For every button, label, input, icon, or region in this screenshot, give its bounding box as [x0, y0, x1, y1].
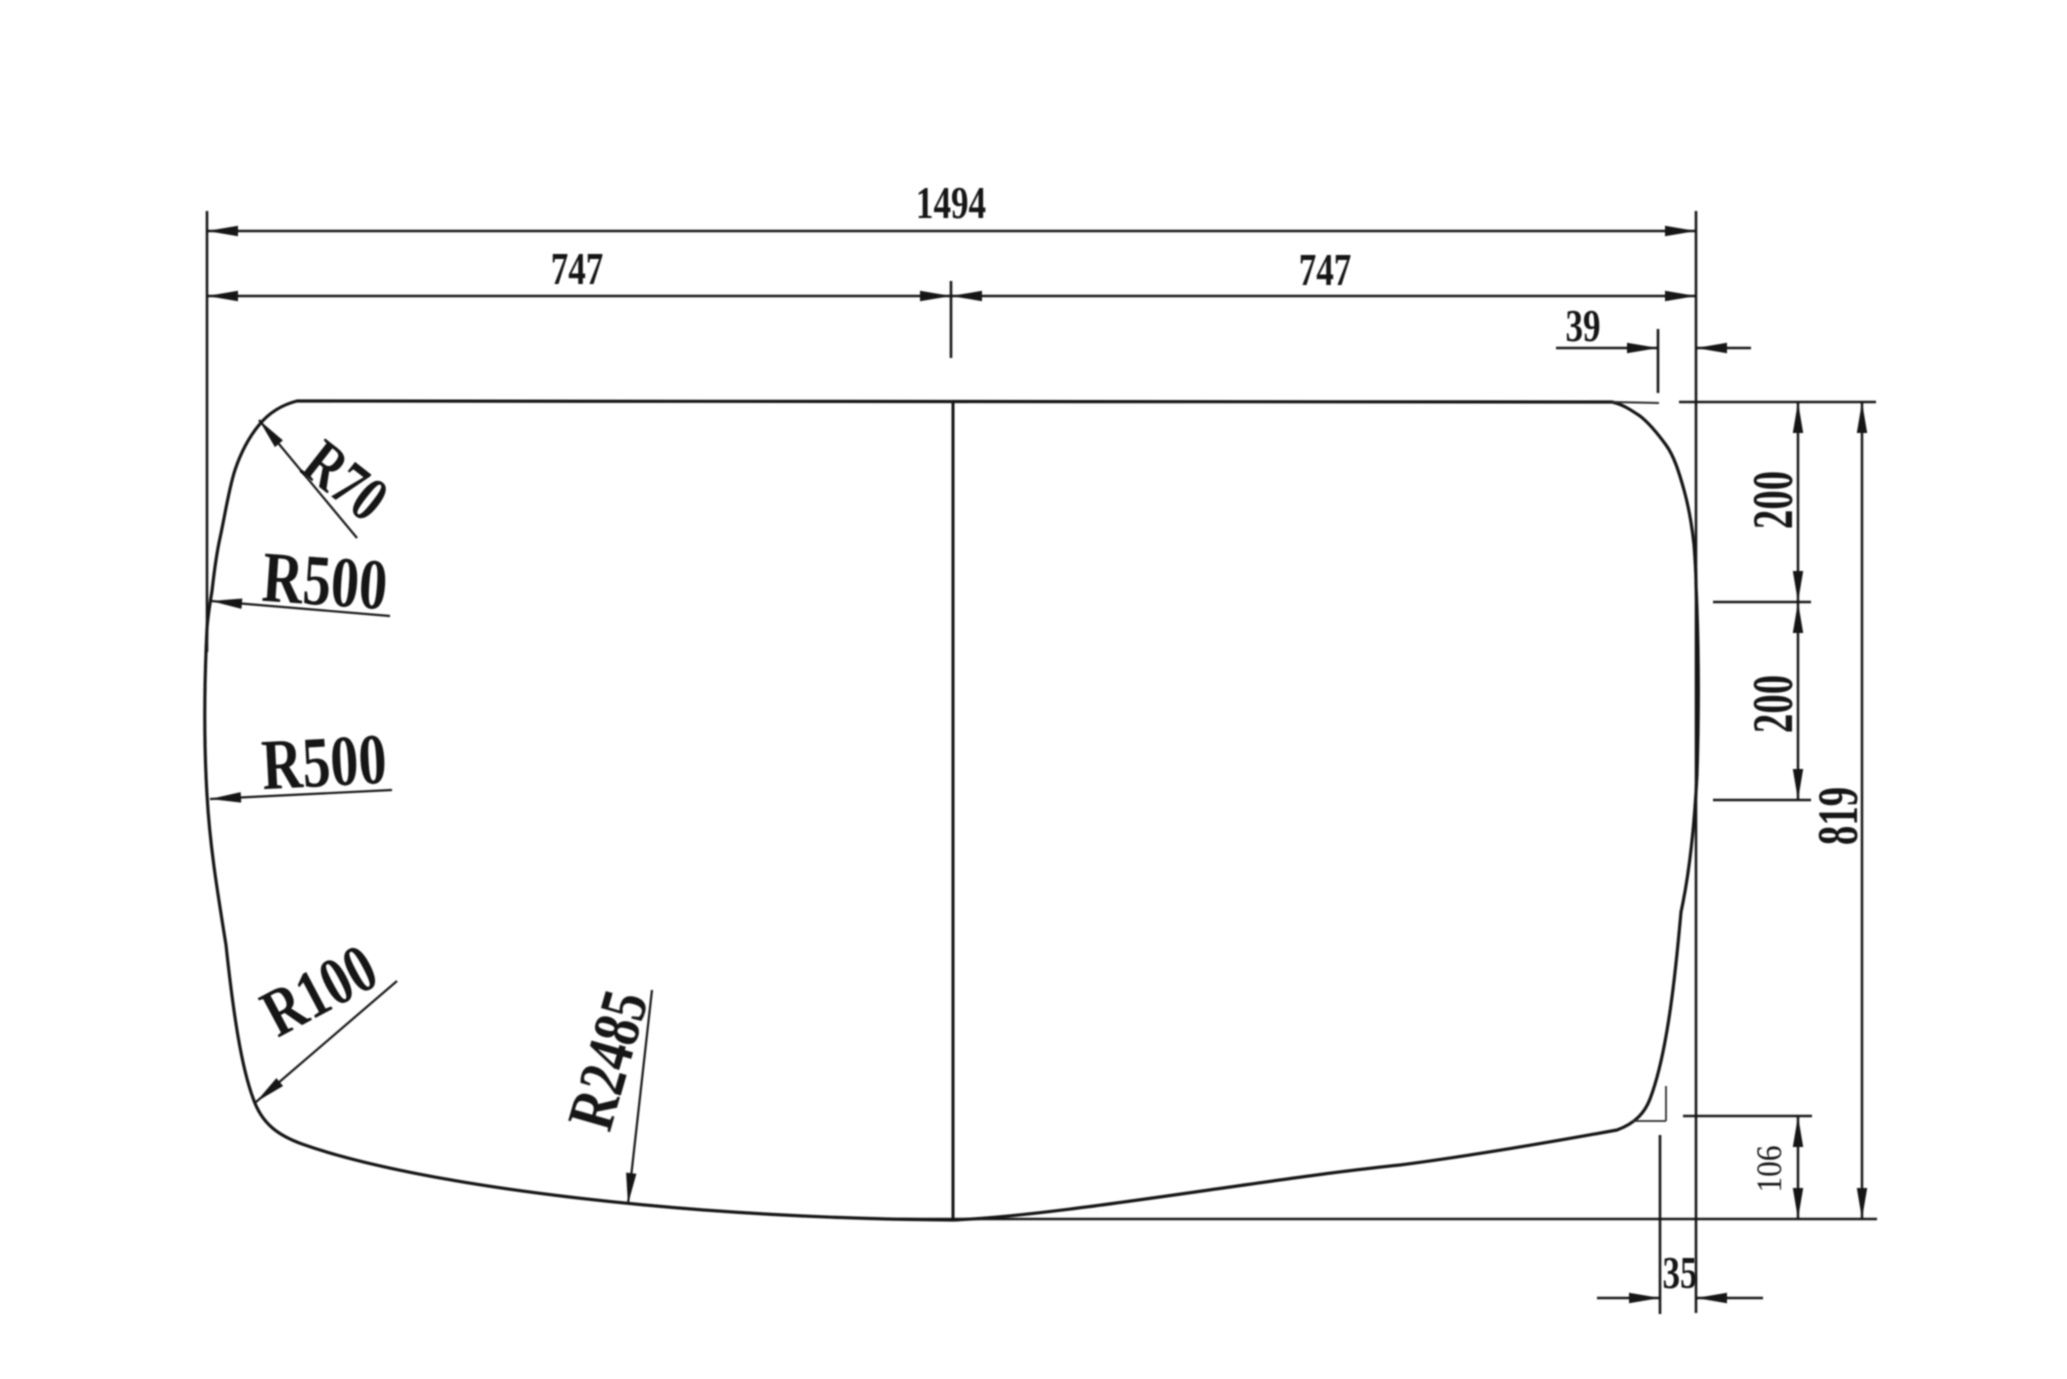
svg-text:200: 200: [1742, 471, 1805, 529]
svg-text:200: 200: [1742, 675, 1805, 733]
svg-text:1494: 1494: [916, 178, 986, 228]
svg-text:R500: R500: [260, 718, 389, 805]
svg-text:35: 35: [1662, 1248, 1697, 1298]
svg-text:R70: R70: [290, 427, 401, 535]
svg-text:R2485: R2485: [553, 982, 662, 1137]
svg-text:747: 747: [551, 244, 604, 294]
svg-text:39: 39: [1565, 301, 1600, 351]
svg-text:747: 747: [1299, 245, 1352, 295]
svg-text:R500: R500: [260, 536, 390, 625]
svg-text:106: 106: [1750, 1146, 1789, 1193]
svg-text:819: 819: [1807, 787, 1870, 845]
svg-text:R100: R100: [250, 930, 389, 1051]
